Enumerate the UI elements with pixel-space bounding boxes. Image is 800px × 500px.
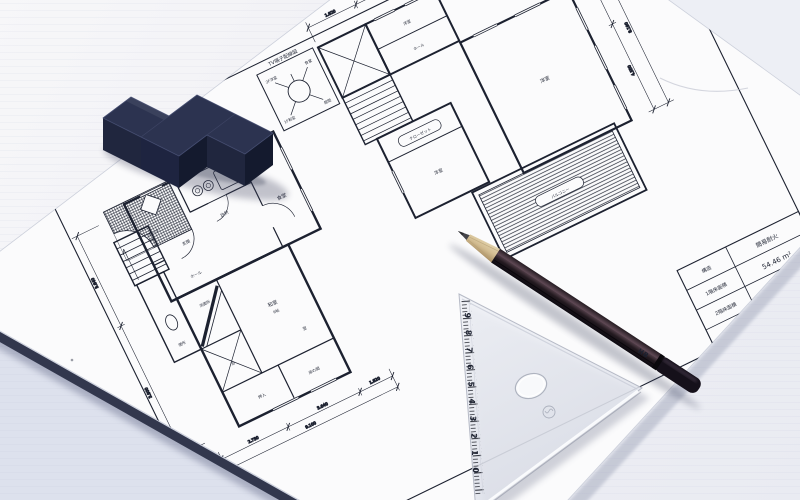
ruler-number: 5 <box>466 381 475 387</box>
ruler-number: 9 <box>463 312 472 318</box>
ruler-number: 6 <box>465 364 474 370</box>
scene-canvas: TV端子配線図 2F洋室 食堂 1F和室 居間 ポーチ <box>0 0 800 500</box>
ruler-number: 2 <box>469 433 478 439</box>
ruler-number: 4 <box>467 398 476 404</box>
ruler-number: 0 <box>471 467 480 473</box>
ruler-number: 1 <box>470 450 479 456</box>
ruler-number: 7 <box>465 347 474 353</box>
ruler-number: 8 <box>464 330 473 336</box>
photo-scene: TV端子配線図 2F洋室 食堂 1F和室 居間 ポーチ <box>0 0 800 500</box>
ruler-number: 3 <box>468 416 477 422</box>
